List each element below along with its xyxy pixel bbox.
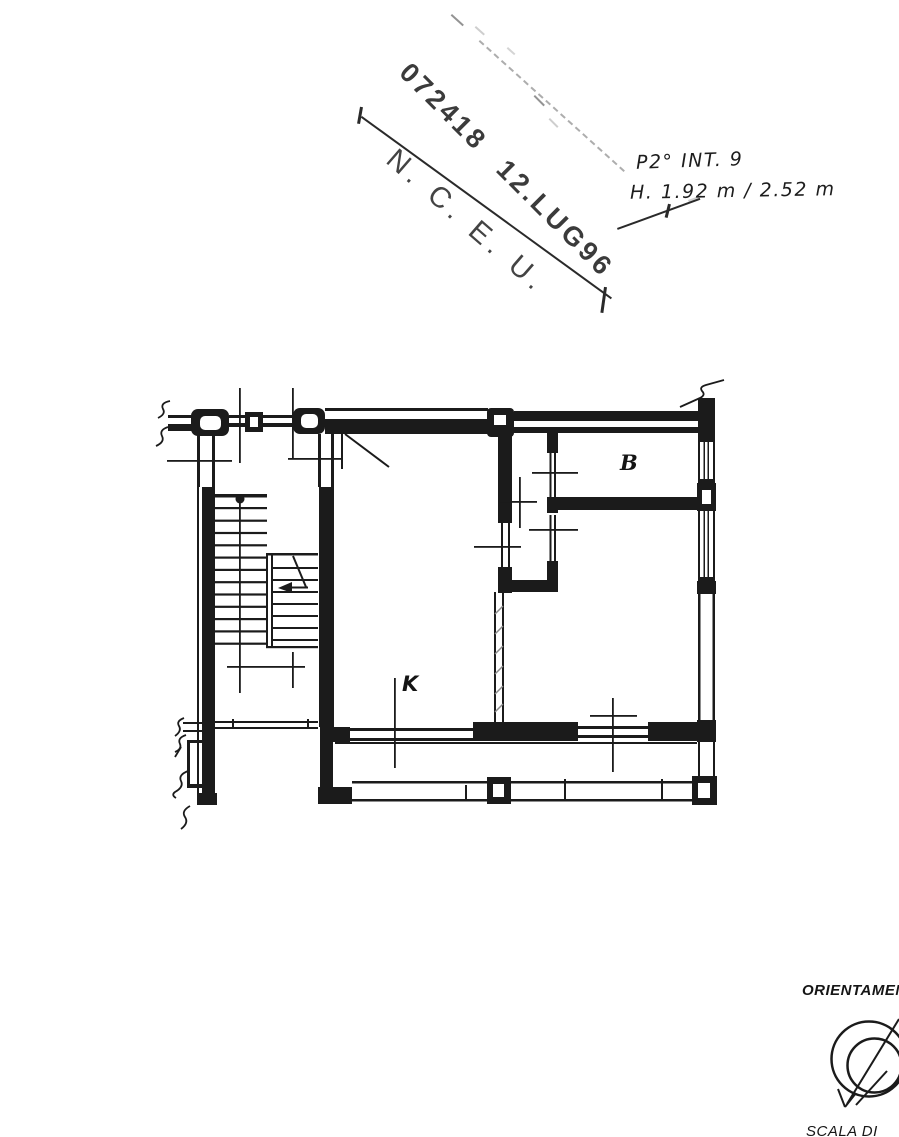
balcony bbox=[334, 777, 717, 804]
apartment-left-wall bbox=[318, 434, 352, 804]
scanned-floor-plan-page: 072418 12.LUG96 N. C. E. U. P2° INT. 9 H… bbox=[0, 0, 899, 1137]
room-label-bathroom: B bbox=[620, 450, 638, 475]
interior-walls bbox=[494, 428, 697, 722]
dimension-lines bbox=[167, 388, 637, 772]
bottom-wall bbox=[333, 722, 697, 744]
left-wall bbox=[183, 434, 217, 805]
staircase bbox=[215, 494, 318, 729]
compass bbox=[832, 1019, 899, 1107]
heights-annotation: H. 1.92 m / 2.52 m bbox=[630, 178, 836, 204]
entrance-door-swing bbox=[342, 431, 389, 469]
floor-unit-annotation: P2° INT. 9 bbox=[636, 148, 744, 174]
floor-plan-drawing bbox=[0, 0, 899, 1137]
stair-direction-arrow bbox=[278, 556, 308, 593]
partition-hatch bbox=[495, 606, 503, 712]
top-wall bbox=[168, 408, 698, 437]
room-label-kitchen: K bbox=[402, 672, 418, 696]
scale-label: SCALA DI bbox=[806, 1123, 878, 1137]
break-marks bbox=[156, 380, 724, 829]
orientation-label: ORIENTAMENTO bbox=[802, 982, 899, 999]
